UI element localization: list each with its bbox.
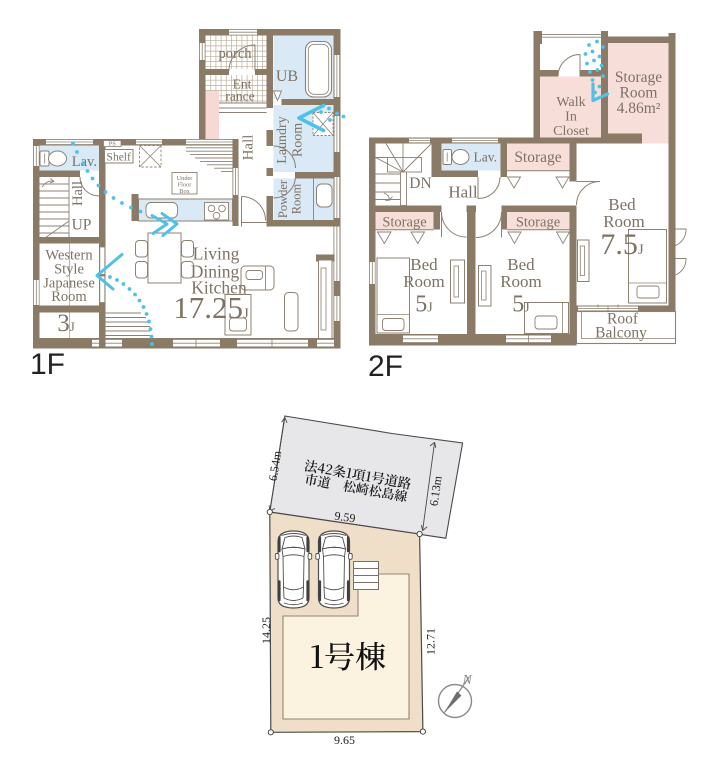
svg-text:17.25J: 17.25J [173,290,249,325]
svg-text:PS: PS [109,141,117,148]
svg-text:Room: Room [290,183,304,214]
svg-text:Room: Room [291,123,306,157]
svg-text:9.65: 9.65 [334,733,355,747]
svg-text:Lav.: Lav. [474,150,498,165]
svg-text:Living: Living [193,244,240,264]
svg-text:porch: porch [218,46,252,62]
svg-text:UB: UB [276,68,298,85]
svg-text:Powder: Powder [276,179,290,218]
svg-text:In: In [565,110,577,125]
svg-text:Storage: Storage [516,215,560,231]
svg-text:Room: Room [500,272,542,291]
svg-text:Walk: Walk [556,95,585,110]
svg-text:Hall: Hall [448,183,478,202]
svg-text:12.71: 12.71 [424,628,438,655]
svg-text:Room: Room [403,272,445,291]
svg-text:rance: rance [225,89,254,104]
svg-text:14.25: 14.25 [259,617,273,644]
svg-text:Room: Room [51,289,87,305]
svg-text:UP: UP [72,217,92,234]
svg-text:7.5J: 7.5J [600,228,644,261]
svg-text:N: N [462,673,473,688]
svg-text:9.59: 9.59 [334,509,357,526]
svg-text:Balcony: Balcony [595,325,647,342]
svg-text:Storage: Storage [382,215,426,231]
svg-text:Hall: Hall [70,181,86,206]
svg-text:4.86m²: 4.86m² [617,100,661,117]
svg-text:Storage: Storage [514,149,561,166]
svg-text:Shelf: Shelf [107,151,131,163]
svg-text:Laundry: Laundry [275,116,290,163]
svg-text:Storage: Storage [615,69,662,86]
svg-text:DN: DN [409,175,431,192]
svg-text:Hall: Hall [241,135,257,161]
svg-text:Closet: Closet [553,124,589,139]
svg-text:Room: Room [620,85,658,102]
svg-text:Box: Box [179,188,190,195]
svg-text:1F: 1F [30,348,65,381]
svg-text:2F: 2F [368,350,403,383]
